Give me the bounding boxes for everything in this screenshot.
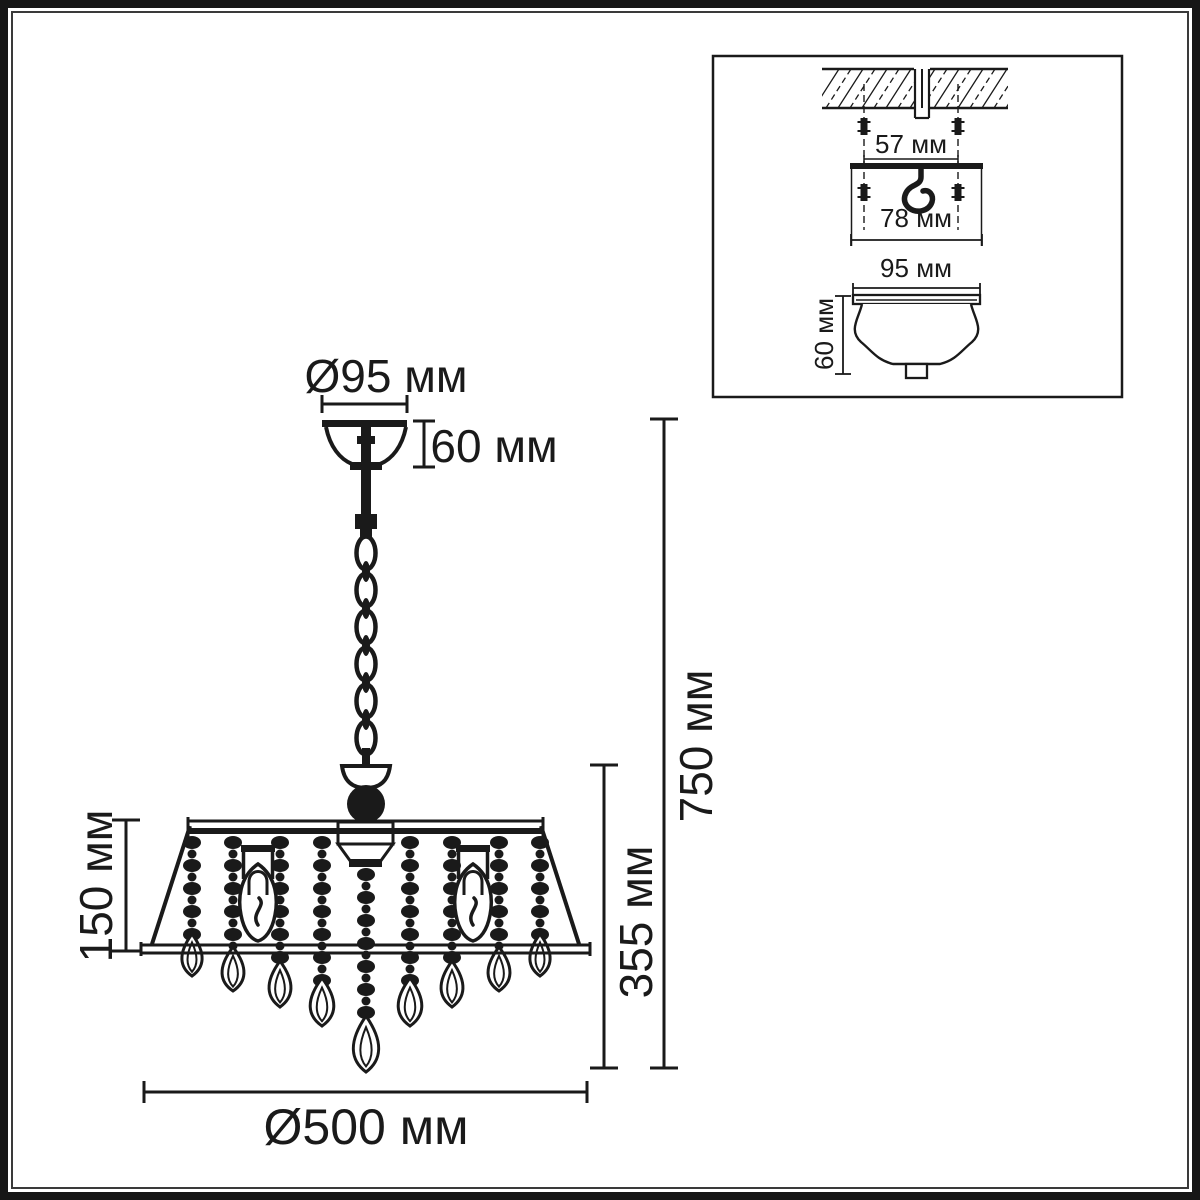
bead xyxy=(188,919,197,928)
screw-body xyxy=(861,184,868,201)
bead xyxy=(183,882,201,895)
bead-strand xyxy=(182,836,202,976)
bead xyxy=(224,859,242,872)
suspension-chain xyxy=(357,537,376,755)
bead xyxy=(313,836,331,849)
bead xyxy=(536,850,545,859)
bead xyxy=(183,859,201,872)
canopy-diameter-label: Ø95 мм xyxy=(305,350,468,402)
shade-height-label: 150 мм xyxy=(70,810,122,963)
anchor-spacing-label: 57 мм xyxy=(875,129,947,159)
bead xyxy=(313,905,331,918)
bead xyxy=(531,836,549,849)
screw-body xyxy=(955,184,962,201)
bead xyxy=(443,928,461,941)
mounting-inset: 57 мм 78 мм 95 мм xyxy=(713,56,1122,397)
bulb-icon xyxy=(249,872,267,896)
bead-strand xyxy=(353,868,378,1072)
dimension-canopy-height: 60 мм xyxy=(413,420,558,472)
bead xyxy=(183,905,201,918)
bead xyxy=(229,896,238,905)
candle-frame-top xyxy=(241,845,275,852)
bead xyxy=(401,882,419,895)
bead xyxy=(406,873,415,882)
bead xyxy=(229,850,238,859)
bead xyxy=(318,850,327,859)
bead xyxy=(536,896,545,905)
crystal-drop xyxy=(310,978,334,1026)
bead xyxy=(490,859,508,872)
bead xyxy=(276,850,285,859)
anchor-plug xyxy=(861,118,868,135)
bead xyxy=(188,850,197,859)
candle-light xyxy=(455,845,492,941)
bead xyxy=(224,928,242,941)
candle-light xyxy=(240,845,277,941)
total-height-label: 750 мм xyxy=(670,670,722,823)
bead xyxy=(229,919,238,928)
bead xyxy=(271,928,289,941)
anchor-plug xyxy=(955,118,962,135)
bead xyxy=(318,965,327,974)
bead xyxy=(313,928,331,941)
bead xyxy=(276,873,285,882)
bead xyxy=(536,919,545,928)
bead xyxy=(401,905,419,918)
bead xyxy=(188,896,197,905)
inset-canopy-height-label: 60 мм xyxy=(809,298,839,370)
overall-diameter-label: Ø500 мм xyxy=(264,1099,469,1155)
ceiling-canopy xyxy=(322,420,407,538)
dimension-body-height: 355 мм xyxy=(590,765,662,1068)
bead xyxy=(406,965,415,974)
bead-strand xyxy=(530,836,550,976)
bead xyxy=(229,873,238,882)
bead xyxy=(495,850,504,859)
bead xyxy=(183,836,201,849)
bead xyxy=(406,919,415,928)
bead xyxy=(188,873,197,882)
bead xyxy=(448,919,457,928)
bead xyxy=(357,960,375,973)
bead xyxy=(448,873,457,882)
bead xyxy=(357,868,375,881)
bead xyxy=(318,873,327,882)
bead xyxy=(531,859,549,872)
bead xyxy=(495,896,504,905)
bead-strand xyxy=(310,836,334,1026)
bead xyxy=(318,919,327,928)
bead xyxy=(495,919,504,928)
bead xyxy=(362,997,371,1006)
bead xyxy=(490,928,508,941)
bead xyxy=(276,919,285,928)
bead xyxy=(313,882,331,895)
candle-frame-top xyxy=(456,845,490,852)
bead xyxy=(224,836,242,849)
bead xyxy=(362,928,371,937)
bead xyxy=(531,905,549,918)
bead xyxy=(401,836,419,849)
bead xyxy=(357,891,375,904)
bead xyxy=(536,873,545,882)
bead xyxy=(401,928,419,941)
bead xyxy=(490,882,508,895)
bead xyxy=(357,914,375,927)
bead xyxy=(495,873,504,882)
bead xyxy=(531,882,549,895)
bead-strand xyxy=(398,836,422,1026)
diagram-page: Ø95 мм 60 мм xyxy=(0,0,1200,1200)
bead xyxy=(406,896,415,905)
bead xyxy=(357,983,375,996)
bead xyxy=(318,896,327,905)
bead xyxy=(406,850,415,859)
crystal-drop xyxy=(398,978,422,1026)
body-height-label: 355 мм xyxy=(610,846,662,999)
dimension-canopy-diameter: Ø95 мм xyxy=(305,350,468,413)
bulb-icon xyxy=(464,872,482,896)
technical-drawing: Ø95 мм 60 мм xyxy=(0,0,1200,1200)
canopy-height-label: 60 мм xyxy=(430,420,557,472)
bead xyxy=(401,859,419,872)
bead xyxy=(448,850,457,859)
bead xyxy=(362,882,371,891)
bead xyxy=(490,836,508,849)
dimension-shade-height: 150 мм xyxy=(70,810,140,963)
bead xyxy=(362,974,371,983)
crystal-drop xyxy=(353,1016,378,1072)
main-view: Ø95 мм 60 мм xyxy=(70,350,722,1155)
dimension-anchor-spacing: 57 мм xyxy=(864,129,958,163)
bracket-width-label: 78 мм xyxy=(880,203,952,233)
chain-cup-and-ball xyxy=(342,748,390,823)
inset-canopy-diameter-label: 95 мм xyxy=(880,253,952,283)
dimension-overall-diameter: Ø500 мм xyxy=(144,1081,587,1155)
bead xyxy=(313,859,331,872)
bead xyxy=(362,905,371,914)
